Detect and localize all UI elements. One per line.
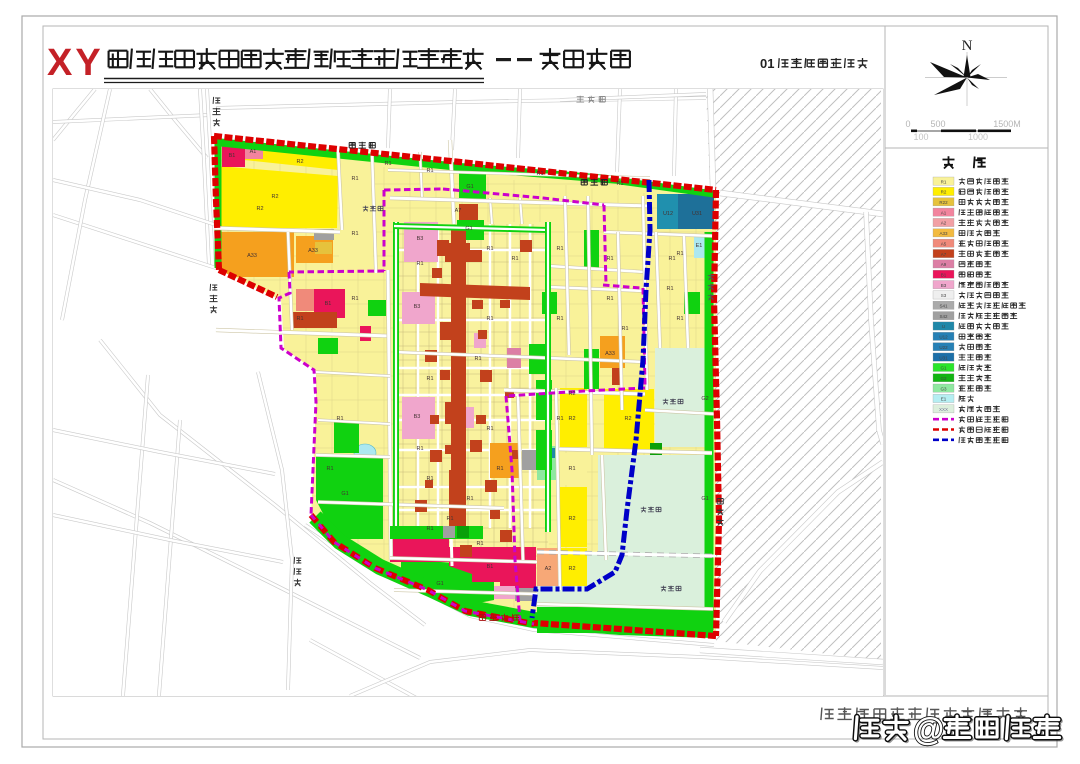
- svg-text:R1: R1: [326, 466, 333, 472]
- svg-text:G3: G3: [940, 386, 947, 391]
- svg-text:E1: E1: [941, 397, 947, 402]
- svg-text:R1: R1: [666, 286, 673, 292]
- svg-text:S42: S42: [939, 314, 948, 319]
- svg-text:R22: R22: [939, 200, 948, 205]
- svg-text:U: U: [942, 324, 945, 329]
- svg-text:G1: G1: [436, 581, 443, 587]
- svg-text:R1: R1: [511, 256, 518, 262]
- svg-text:R1: R1: [426, 526, 433, 532]
- svg-text:A33: A33: [605, 351, 615, 357]
- svg-text:G1: G1: [341, 491, 348, 497]
- svg-text:R1: R1: [416, 261, 423, 267]
- svg-text:B3: B3: [417, 236, 424, 242]
- svg-text:N: N: [962, 38, 973, 54]
- svg-text:R1: R1: [474, 356, 481, 362]
- svg-text:R1: R1: [606, 256, 613, 262]
- svg-text:R1: R1: [606, 296, 613, 302]
- svg-text:B3: B3: [941, 283, 947, 288]
- svg-text:R1: R1: [426, 168, 433, 174]
- svg-text:A5: A5: [941, 241, 947, 246]
- svg-text:R1: R1: [486, 316, 493, 322]
- svg-text:A9: A9: [941, 262, 947, 267]
- svg-text:XXX: XXX: [939, 407, 948, 412]
- svg-text:G1: G1: [466, 184, 473, 190]
- svg-text:S41: S41: [939, 304, 948, 309]
- svg-text:A7: A7: [941, 252, 947, 257]
- svg-text:R1: R1: [296, 316, 303, 322]
- svg-text:R2: R2: [568, 416, 575, 422]
- svg-text:A2: A2: [941, 221, 947, 226]
- svg-text:R1: R1: [676, 316, 683, 322]
- svg-text:B1: B1: [941, 272, 947, 277]
- svg-text:R1: R1: [486, 426, 493, 432]
- svg-text:R1: R1: [416, 446, 423, 452]
- svg-text:A33: A33: [247, 253, 257, 259]
- svg-text:R1: R1: [556, 246, 563, 252]
- svg-text:U12: U12: [939, 335, 948, 340]
- svg-text:R1: R1: [486, 246, 493, 252]
- svg-text:U22: U22: [939, 345, 948, 350]
- svg-text:R1: R1: [556, 416, 563, 422]
- svg-text:R1: R1: [668, 256, 675, 262]
- svg-text:XY: XY: [47, 42, 104, 84]
- svg-text:R1: R1: [446, 516, 453, 522]
- svg-text:R1: R1: [476, 541, 483, 547]
- svg-text:R2: R2: [271, 194, 278, 200]
- svg-text:A33: A33: [939, 231, 948, 236]
- svg-text:U31: U31: [939, 355, 948, 360]
- svg-text:R2: R2: [256, 206, 263, 212]
- svg-text:G1: G1: [940, 366, 947, 371]
- svg-text:R1: R1: [676, 251, 683, 257]
- svg-text:R2: R2: [568, 391, 575, 397]
- svg-text:0: 0: [905, 119, 910, 129]
- svg-text:R1: R1: [496, 466, 503, 472]
- svg-text:B1: B1: [487, 564, 494, 570]
- svg-text:G1: G1: [465, 226, 472, 232]
- svg-text:B1: B1: [229, 153, 236, 159]
- svg-text:R2: R2: [941, 190, 947, 195]
- svg-text:B1: B1: [325, 301, 332, 307]
- svg-text:R1: R1: [536, 171, 543, 177]
- svg-text:G2: G2: [701, 396, 708, 402]
- svg-text:R1: R1: [384, 161, 391, 167]
- svg-text:U12: U12: [663, 211, 673, 217]
- svg-text:@: @: [913, 711, 944, 747]
- svg-text:A33: A33: [308, 248, 318, 254]
- svg-text:1500M: 1500M: [993, 119, 1021, 129]
- svg-text:S3: S3: [941, 293, 947, 298]
- svg-text:G1: G1: [701, 496, 708, 502]
- svg-text:R1: R1: [616, 181, 623, 187]
- svg-text:R1: R1: [351, 176, 358, 182]
- svg-text:G2: G2: [940, 376, 947, 381]
- svg-text:1000: 1000: [968, 132, 988, 142]
- svg-text:B3: B3: [414, 414, 421, 420]
- svg-text:U31: U31: [692, 211, 702, 217]
- svg-text:R1: R1: [466, 496, 473, 502]
- svg-text:R1: R1: [568, 466, 575, 472]
- svg-text:A2: A2: [545, 566, 552, 572]
- svg-text:A1: A1: [250, 149, 257, 155]
- svg-text:01: 01: [760, 56, 774, 71]
- svg-text:R1: R1: [336, 416, 343, 422]
- svg-text:R1: R1: [426, 476, 433, 482]
- svg-text:R1: R1: [426, 376, 433, 382]
- svg-text:B3: B3: [414, 304, 421, 310]
- svg-text:R2: R2: [624, 416, 631, 422]
- svg-text:A1: A1: [941, 210, 947, 215]
- svg-text:E1: E1: [696, 243, 703, 249]
- svg-text:R1: R1: [351, 231, 358, 237]
- svg-text:100: 100: [913, 132, 928, 142]
- svg-text:R2: R2: [296, 159, 303, 165]
- svg-text:R1: R1: [351, 296, 358, 302]
- svg-text:A7: A7: [455, 208, 462, 214]
- svg-text:R1: R1: [621, 326, 628, 332]
- svg-text:R1: R1: [941, 179, 947, 184]
- svg-text:R2: R2: [568, 516, 575, 522]
- svg-text:500: 500: [930, 119, 945, 129]
- svg-text:R1: R1: [556, 316, 563, 322]
- svg-text:R2: R2: [568, 566, 575, 572]
